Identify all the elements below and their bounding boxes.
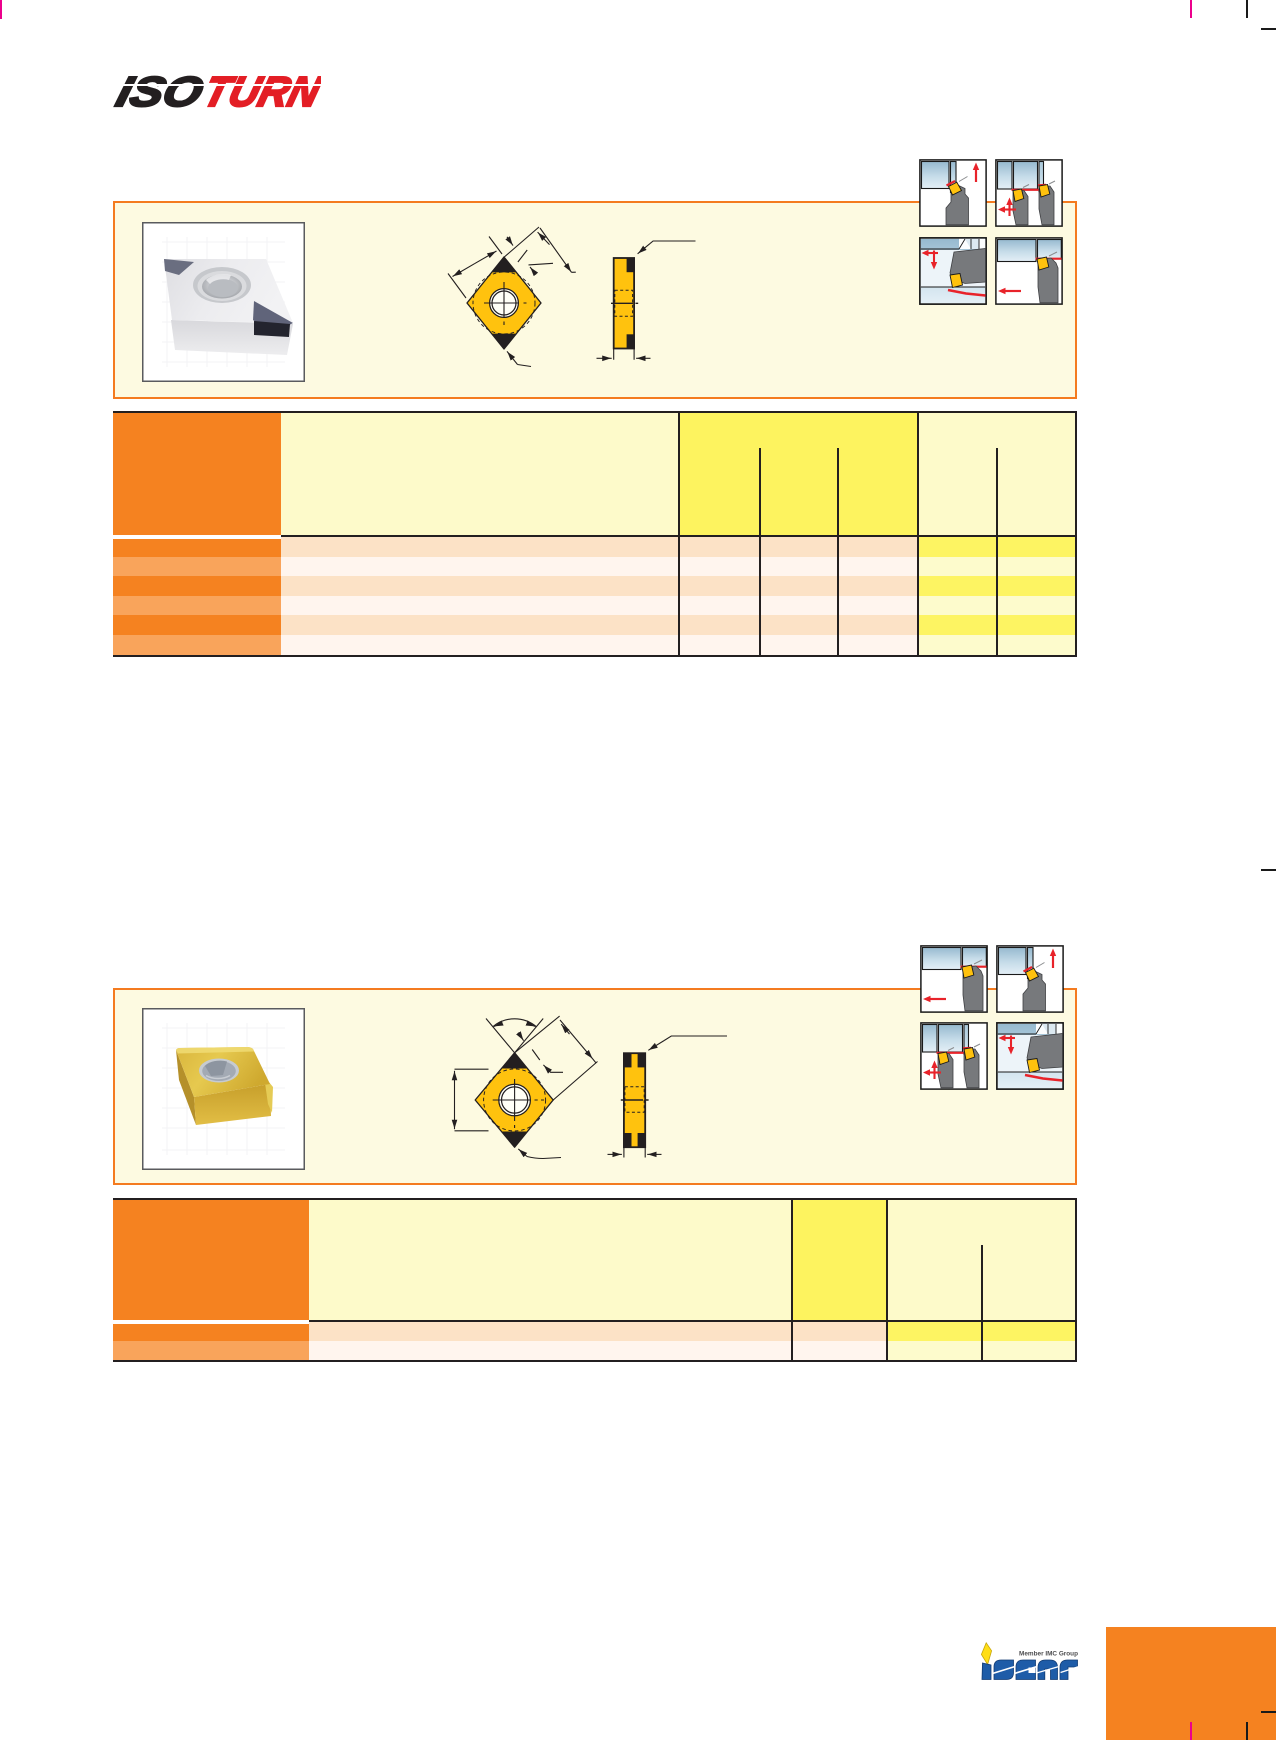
svg-text:TURN: TURN bbox=[199, 73, 321, 111]
svg-text:ISO: ISO bbox=[112, 73, 209, 111]
svg-text:Member IMC Group: Member IMC Group bbox=[1019, 1651, 1078, 1658]
